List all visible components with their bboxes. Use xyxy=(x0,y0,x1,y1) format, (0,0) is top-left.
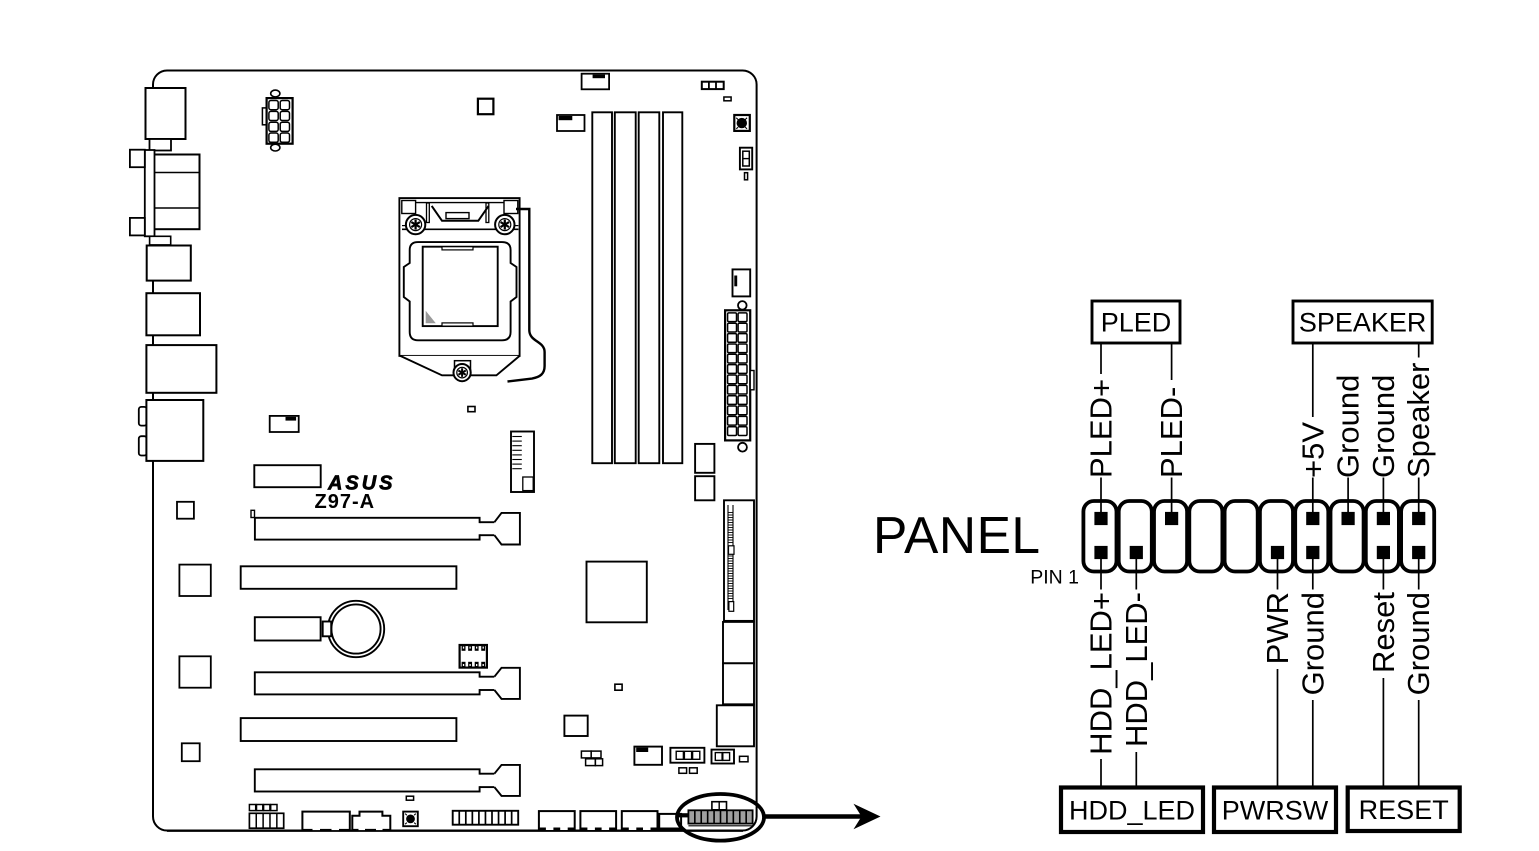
svg-text:PLED: PLED xyxy=(1101,308,1172,338)
svg-text:PLED+: PLED+ xyxy=(1084,379,1119,478)
svg-text:HDD_LED-: HDD_LED- xyxy=(1119,592,1154,747)
svg-text:Z97-A: Z97-A xyxy=(315,491,376,513)
svg-text:HDD_LED+: HDD_LED+ xyxy=(1084,592,1119,755)
svg-text:PWRSW: PWRSW xyxy=(1222,796,1329,826)
svg-text:Speaker: Speaker xyxy=(1401,363,1436,478)
svg-text:PLED-: PLED- xyxy=(1154,387,1189,478)
svg-text:PWR: PWR xyxy=(1260,592,1295,664)
svg-text:Ground: Ground xyxy=(1295,592,1330,695)
svg-text:RESET: RESET xyxy=(1359,795,1449,825)
svg-text:Ground: Ground xyxy=(1366,375,1401,478)
svg-text:HDD_LED: HDD_LED xyxy=(1069,796,1195,826)
svg-text:Reset: Reset xyxy=(1366,592,1401,673)
svg-text:PIN 1: PIN 1 xyxy=(1030,567,1079,589)
svg-text:SPEAKER: SPEAKER xyxy=(1299,308,1427,338)
svg-text:PANEL: PANEL xyxy=(873,506,1041,564)
svg-text:Ground: Ground xyxy=(1331,375,1366,478)
svg-text:+5V: +5V xyxy=(1295,422,1330,478)
svg-text:Ground: Ground xyxy=(1401,592,1436,695)
